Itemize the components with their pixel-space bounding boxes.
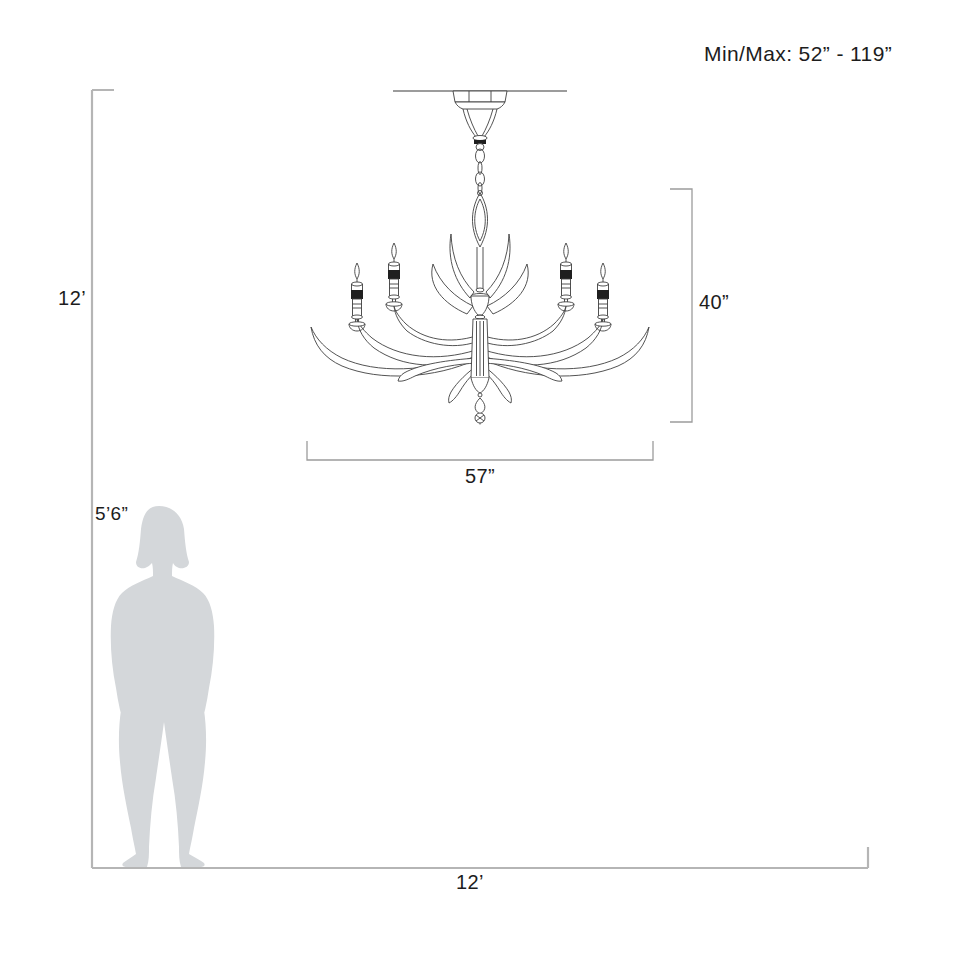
center-stem	[471, 247, 489, 393]
min-max-hanging-length-label: Min/Max: 52” - 119”	[704, 42, 892, 66]
ceiling-height-label: 12’	[38, 287, 86, 310]
fixture-height-bracket	[670, 189, 692, 422]
ceiling-canopy	[453, 91, 507, 151]
floor-width-label: 12’	[440, 871, 500, 894]
bottom-drop	[475, 393, 485, 425]
top-finial	[472, 193, 487, 247]
fixture-width-label: 57”	[450, 465, 510, 488]
left-arm-cluster	[311, 234, 481, 403]
right-arm-cluster	[479, 234, 649, 403]
room-height-dimension-line	[92, 90, 114, 868]
dimension-diagram: Min/Max: 52” - 119” 12’ 40” 57” 5’6” 12’	[0, 0, 960, 960]
fixture-width-bracket	[307, 441, 653, 460]
hanging-chain	[476, 149, 485, 196]
fixture-height-label: 40”	[699, 291, 729, 314]
person-height-label: 5’6”	[95, 503, 128, 525]
room-width-dimension-line	[92, 847, 868, 868]
chandelier-drawing	[311, 91, 649, 425]
person-silhouette	[111, 506, 215, 867]
